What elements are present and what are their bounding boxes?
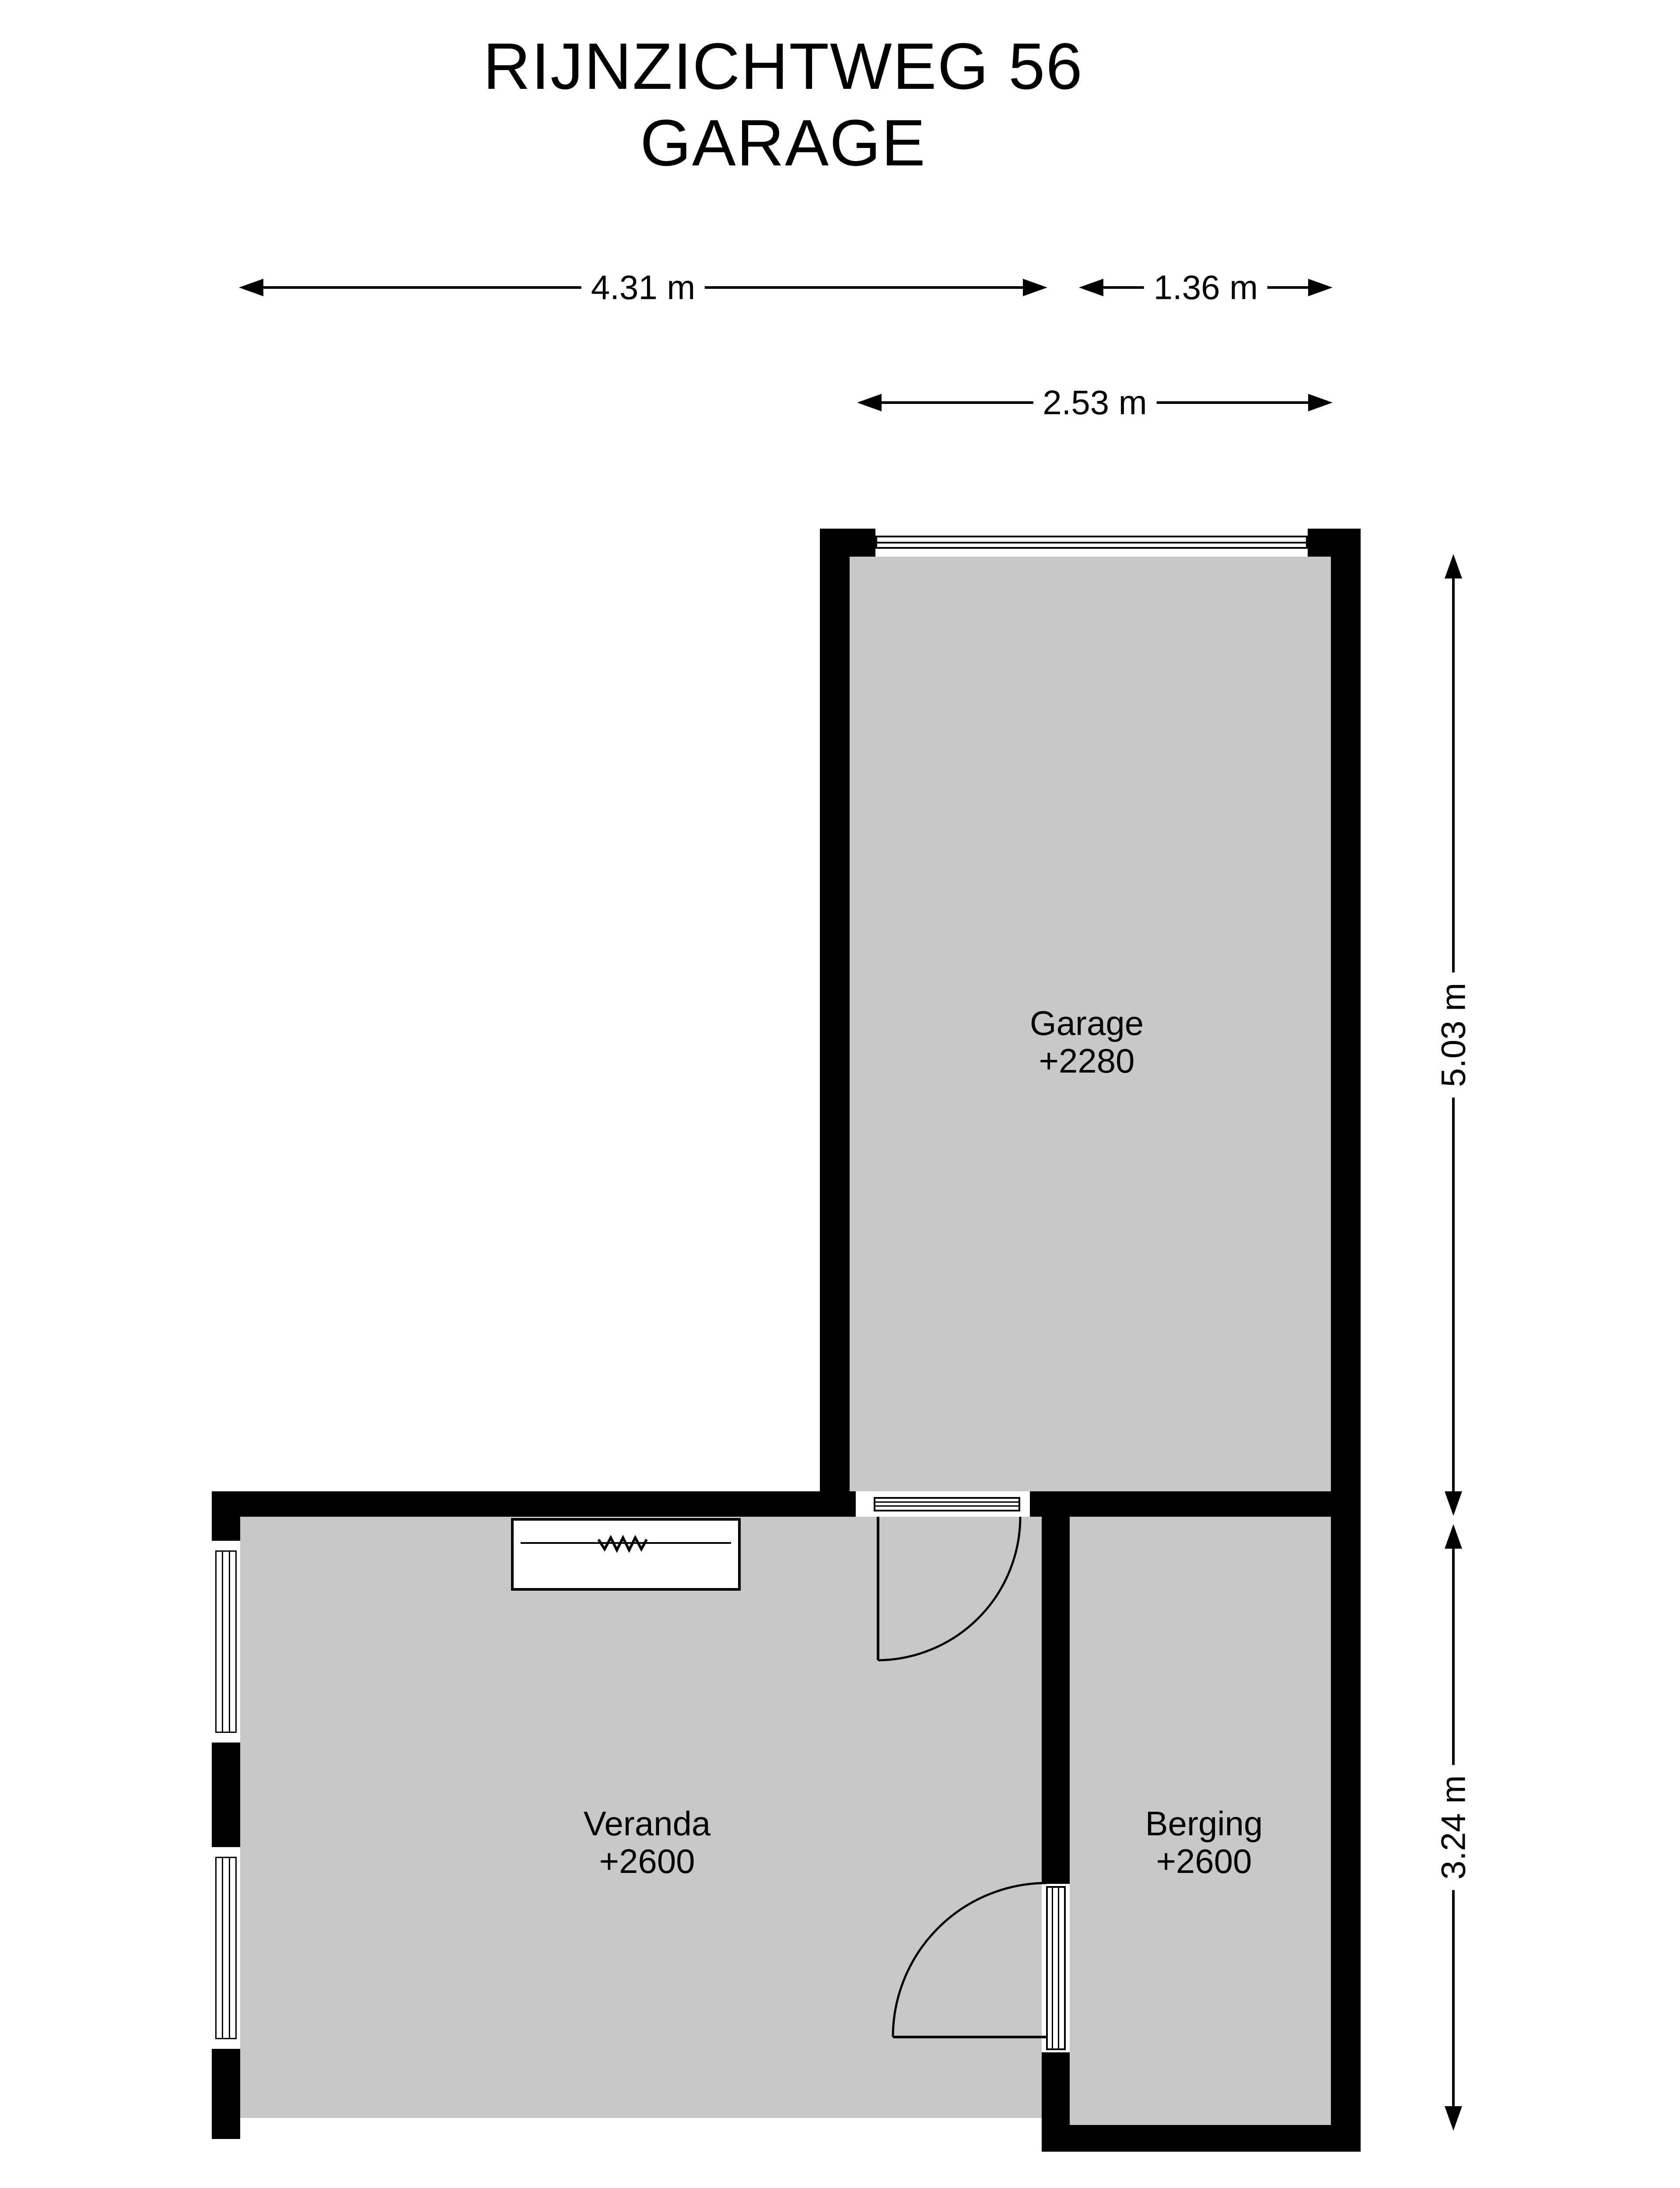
dimension-label-garage-width: 2.53 m: [1033, 383, 1156, 423]
garage-right-pier: [1308, 529, 1361, 557]
plan-title: RIJNZICHTWEG 56 GARAGE: [0, 28, 1566, 181]
dimension-arrow-berging-depth: 3.24 m: [1445, 1524, 1462, 2131]
room-name-berging: Berging: [1145, 1805, 1263, 1842]
berging-bottom-wall: [1042, 2125, 1361, 2152]
arrow-head-down-icon: [1445, 1491, 1462, 1516]
arrow-head-right-icon: [1308, 279, 1333, 296]
garage-left-wall: [820, 529, 850, 1491]
garage-left-pier: [820, 529, 875, 557]
dimension-label-berging-depth: 3.24 m: [1434, 1765, 1473, 1890]
veranda-fixture-shelf-line: [521, 1521, 731, 1544]
dimension-label-berging-width: 1.36 m: [1144, 268, 1267, 308]
dimension-arrow-berging-width: 1.36 m: [1079, 279, 1333, 296]
room-label-garage: Garage +2280: [1030, 1004, 1144, 1080]
veranda-berging-door-frame: [1046, 1886, 1066, 2050]
door-frame-line: [875, 1505, 1018, 1507]
room-label-veranda: Veranda +2600: [584, 1805, 711, 1880]
berging-top-wall: [1030, 1491, 1361, 1517]
window-glazing-line: [222, 1552, 223, 1732]
garage-berging-right-wall: [1331, 529, 1361, 2152]
garage-door: [875, 536, 1308, 549]
floor-plan-canvas: RIJNZICHTWEG 56 GARAGE: [0, 0, 1680, 2188]
dimension-arrow-garage-width: 2.53 m: [857, 394, 1333, 411]
door-frame-line: [875, 1501, 1018, 1503]
room-elevation-garage: +2280: [1030, 1042, 1144, 1080]
dimension-label-garage-depth: 5.03 m: [1434, 972, 1473, 1098]
berging-left-wall-upper: [1042, 1517, 1070, 1884]
garage-veranda-door-frame: [874, 1497, 1020, 1511]
veranda-window-1: [212, 1541, 240, 1743]
veranda-window-2: [212, 1847, 240, 2049]
garage-door-mid-line: [877, 542, 1306, 543]
window-glazing-line: [229, 1858, 230, 2038]
window-frame: [215, 1550, 237, 1733]
veranda-berging-door-leaf: [893, 2036, 1047, 2038]
window-frame: [215, 1857, 237, 2039]
arrow-head-right-icon: [1308, 394, 1333, 411]
room-label-berging: Berging +2600: [1145, 1805, 1263, 1880]
window-glazing-line: [229, 1552, 230, 1732]
room-name-garage: Garage: [1030, 1004, 1144, 1042]
door-frame-line: [1052, 1888, 1053, 2048]
window-glazing-line: [222, 1858, 223, 2038]
veranda-fixture: [511, 1518, 741, 1591]
veranda-left-wall-lower: [212, 2039, 240, 2139]
arrow-head-down-icon: [1445, 2106, 1462, 2131]
veranda-top-wall: [212, 1491, 856, 1517]
room-elevation-veranda: +2600: [584, 1842, 711, 1880]
veranda-left-wall-middle: [212, 1733, 240, 1857]
plan-title-line1: RIJNZICHTWEG 56: [0, 28, 1566, 105]
room-name-veranda: Veranda: [584, 1805, 711, 1842]
plan-title-line2: GARAGE: [0, 105, 1566, 181]
dimension-arrow-total-width: 4.31 m: [239, 279, 1047, 296]
dimension-arrow-garage-depth: 5.03 m: [1445, 554, 1462, 1516]
arrow-head-right-icon: [1023, 279, 1047, 296]
dimension-label-total-width: 4.31 m: [581, 268, 705, 308]
garage-veranda-door-leaf: [877, 1517, 879, 1660]
door-frame-line: [1058, 1888, 1059, 2048]
room-elevation-berging: +2600: [1145, 1842, 1263, 1880]
